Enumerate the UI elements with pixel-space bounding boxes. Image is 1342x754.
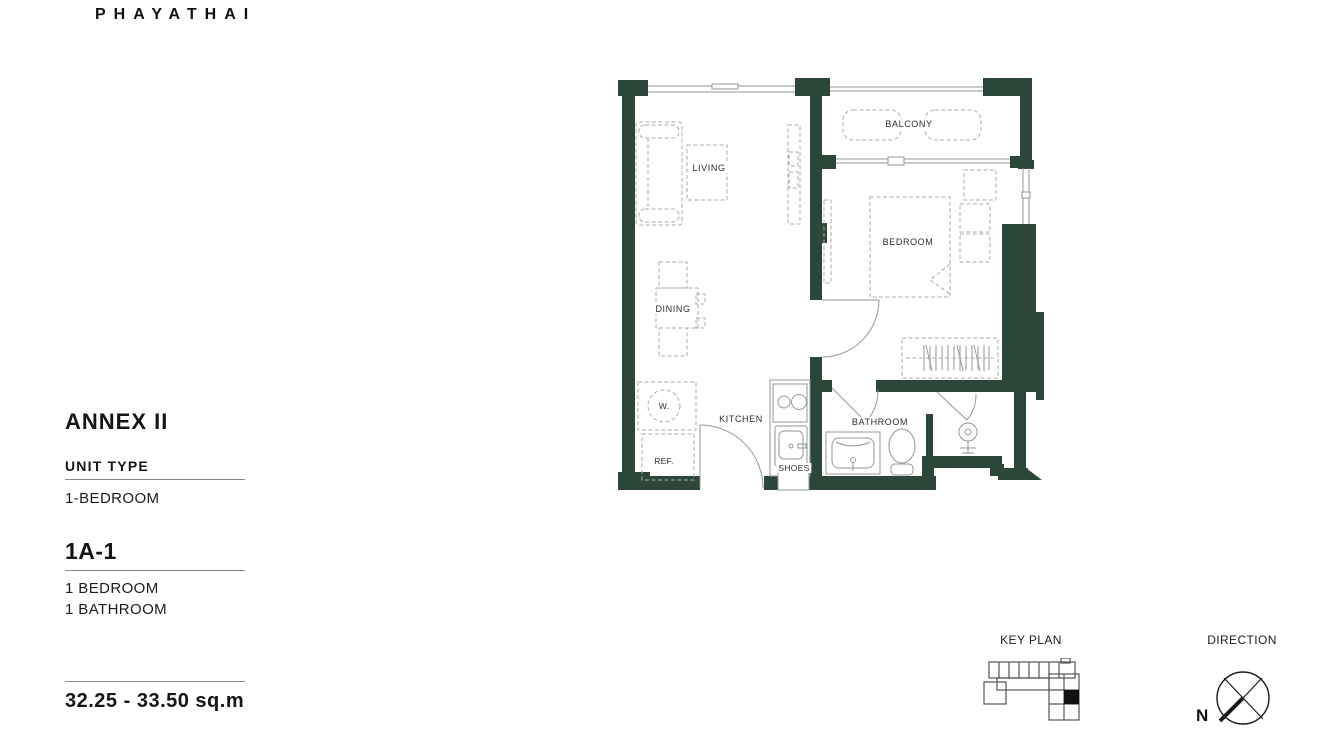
divider-line: [65, 479, 245, 480]
unit-type-heading: UNIT TYPE: [65, 458, 149, 474]
label-bedroom: BEDROOM: [881, 237, 936, 247]
north-label: N: [1196, 706, 1208, 726]
windows: [648, 84, 1030, 224]
entrance-door-arc: [700, 425, 763, 488]
key-plan-icon: [983, 658, 1087, 724]
fixtures: [770, 380, 977, 490]
label-balcony: BALCONY: [883, 119, 934, 129]
divider-line: [65, 681, 245, 682]
shower-door-arc: [967, 394, 976, 420]
area-range: 32.25 - 33.50 sq.m: [65, 690, 244, 713]
direction-heading: DIRECTION: [1182, 633, 1302, 647]
unit-code: 1A-1: [65, 538, 117, 565]
divider-line: [65, 570, 245, 571]
key-plan-unit-highlight: [1064, 690, 1079, 704]
label-washer: W.: [657, 401, 672, 411]
bedroom-door-arc: [822, 300, 879, 357]
compass-icon: [1212, 667, 1274, 729]
unit-type-value: 1-BEDROOM: [65, 490, 159, 507]
label-shoes: SHOES: [776, 463, 811, 473]
brochure-page: PHAYATHAI ANNEX II UNIT TYPE 1-BEDROOM 1…: [0, 0, 1342, 754]
feature-bedroom: 1 BEDROOM: [65, 580, 159, 597]
feature-bathroom: 1 BATHROOM: [65, 601, 167, 618]
floor-plan: LIVING BALCONY BEDROOM DINING KITCHEN BA…: [612, 72, 1045, 500]
shower-door-glass: [937, 392, 967, 420]
project-title: ANNEX II: [65, 409, 168, 435]
label-living: LIVING: [690, 163, 727, 173]
label-refrigerator: REF.: [652, 456, 676, 466]
label-bathroom: BATHROOM: [850, 417, 910, 427]
floor-plan-drawing: [612, 72, 1045, 500]
key-plan-heading: KEY PLAN: [971, 633, 1091, 647]
label-kitchen: KITCHEN: [717, 414, 765, 424]
label-dining: DINING: [653, 304, 692, 314]
brand-logo: PHAYATHAI: [95, 6, 256, 24]
